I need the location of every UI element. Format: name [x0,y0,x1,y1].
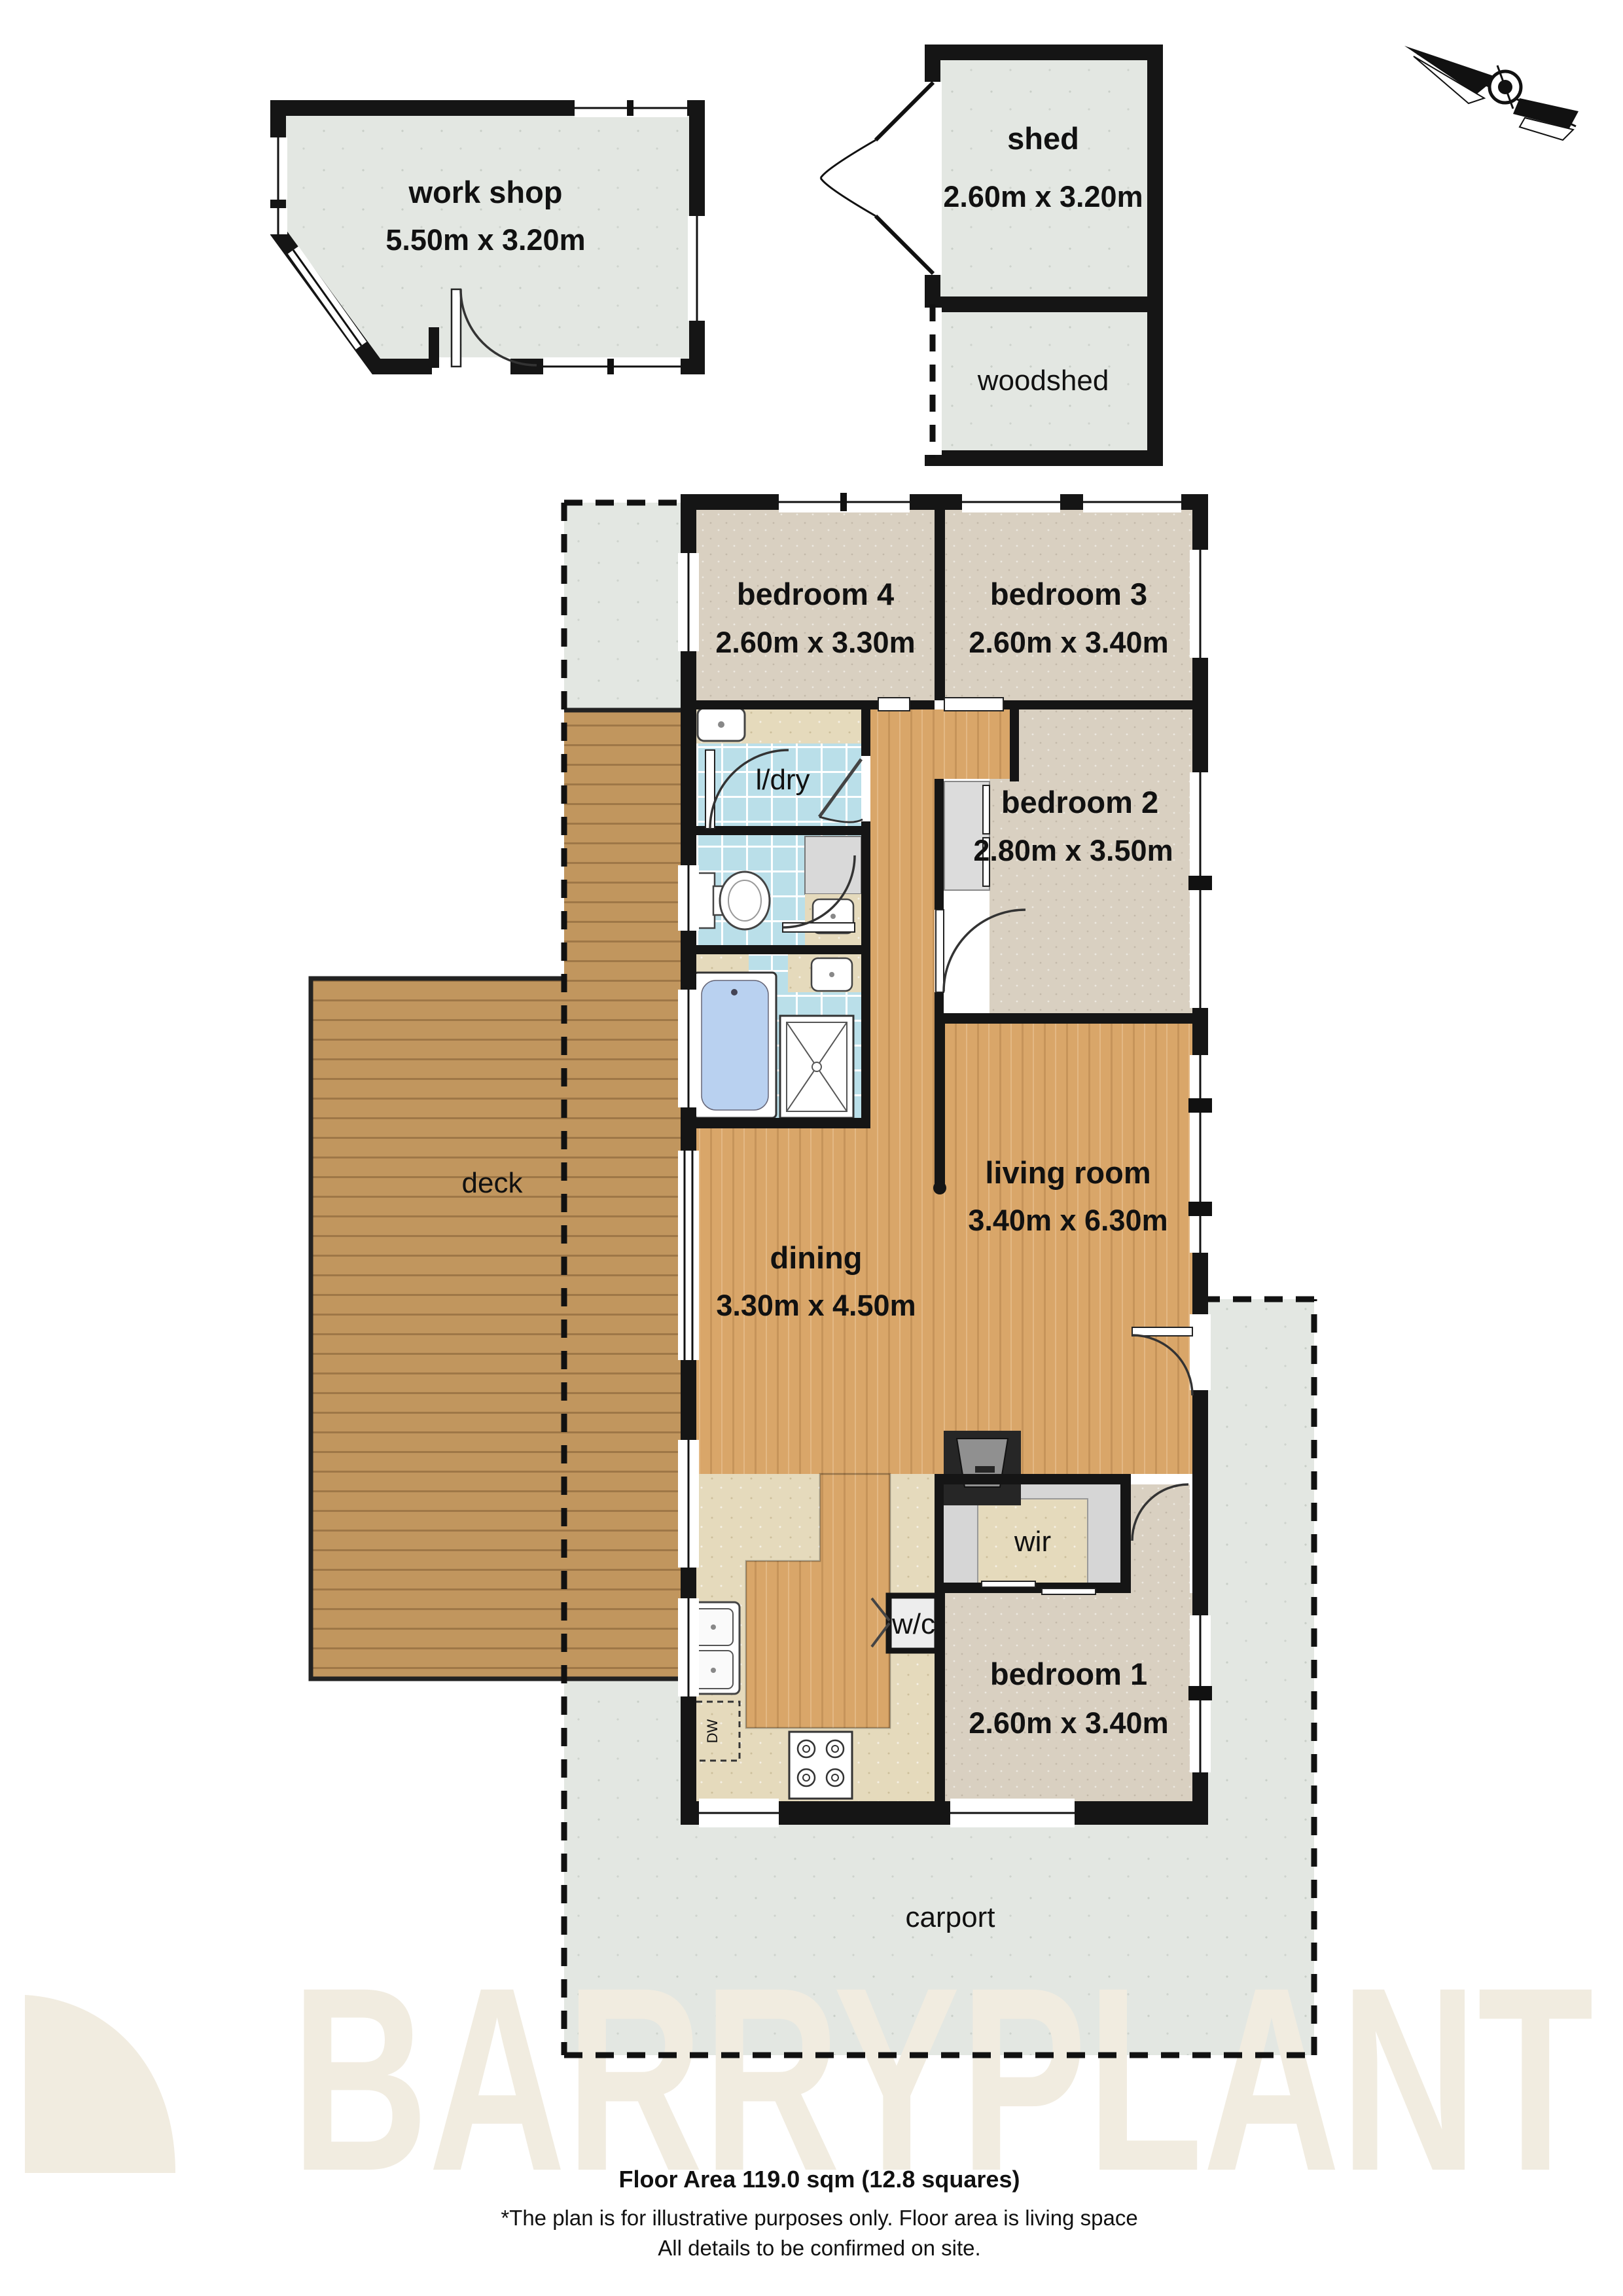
deck-label: deck [462,1167,524,1199]
floorplan-page: BARRYPLANT deck work shop 5.50m x 3.20m [0,0,1623,2296]
shed-double-doors [821,82,933,274]
linen-cupboard [805,836,861,894]
deck-walkway [564,710,681,978]
living-exterior-door-leaf [1132,1327,1192,1336]
living-floor [944,1024,1192,1474]
workshop: work shop 5.50m x 3.20m [269,99,706,376]
bedroom1-label: bedroom 1 [990,1657,1147,1691]
deck: deck [311,710,681,1679]
wir-slider-1 [982,1581,1035,1587]
shed-walls [933,52,1155,304]
bedroom1-dims: 2.60m x 3.40m [969,1706,1168,1740]
carport-label: carport [906,1901,995,1933]
laundry-hall-opening [861,756,870,821]
toilet [698,872,770,929]
floorplan-canvas: BARRYPLANT deck work shop 5.50m x 3.20m [0,0,1623,2296]
bedroom3-label: bedroom 3 [990,577,1147,611]
shed: shed 2.60m x 3.20m [821,52,1155,304]
disclaimer-line-2: All details to be confirmed on site. [658,2236,980,2260]
hall-dining-link [870,1024,936,1129]
bedroom2-floor-a [1019,700,1192,781]
shed-dims: 2.60m x 3.20m [943,180,1143,213]
compass-icon [1404,46,1578,140]
barry-plant-watermark [25,1995,175,2173]
dining-living-link [935,1186,944,1474]
stove [789,1732,852,1799]
bedroom3-door [944,698,1003,711]
shed-door-opening [923,82,942,275]
bedroom4-label: bedroom 4 [737,577,894,611]
dining-dims: 3.30m x 4.50m [716,1289,916,1322]
carport-side [1208,1299,1314,1825]
watermark-logo-shape [25,1995,175,2173]
living-dims: 3.40m x 6.30m [968,1204,1168,1237]
bedroom1-floor [945,1593,1192,1801]
woodshed-label: woodshed [977,365,1109,397]
wood-heater [944,1431,1021,1505]
deck-main [311,978,681,1679]
workshop-dims: 5.50m x 3.20m [385,223,585,257]
wir-label: wir [1014,1526,1051,1558]
laundry-label: l/dry [755,764,810,796]
dishwasher-label: DW [704,1719,721,1743]
dining-label: dining [770,1240,863,1275]
side-path [564,503,681,710]
workshop-label: work shop [408,175,562,209]
shower [780,1016,853,1118]
bedroom2-label: bedroom 2 [1001,785,1158,819]
living-label: living room [985,1155,1150,1190]
floor-area-text: Floor Area 119.0 sqm (12.8 squares) [619,2166,1020,2193]
disclaimer-line-1: *The plan is for illustrative purposes o… [501,2206,1137,2230]
bedroom2-dims: 2.80m x 3.50m [973,834,1173,867]
bathtub [694,973,776,1118]
shed-label: shed [1007,121,1079,156]
woodshed: woodshed [921,304,1155,458]
bed1-entry-opening [1131,1474,1188,1484]
bedroom2-door-leaf [936,910,944,992]
wc-label: w/c [891,1608,935,1640]
bedroom4-dims: 2.60m x 3.30m [715,626,915,659]
bedroom4-door [878,698,910,711]
bedroom3-dims: 2.60m x 3.40m [969,626,1168,659]
wir-slider-2 [1042,1588,1096,1594]
bed1-entry-floor [1131,1484,1190,1593]
